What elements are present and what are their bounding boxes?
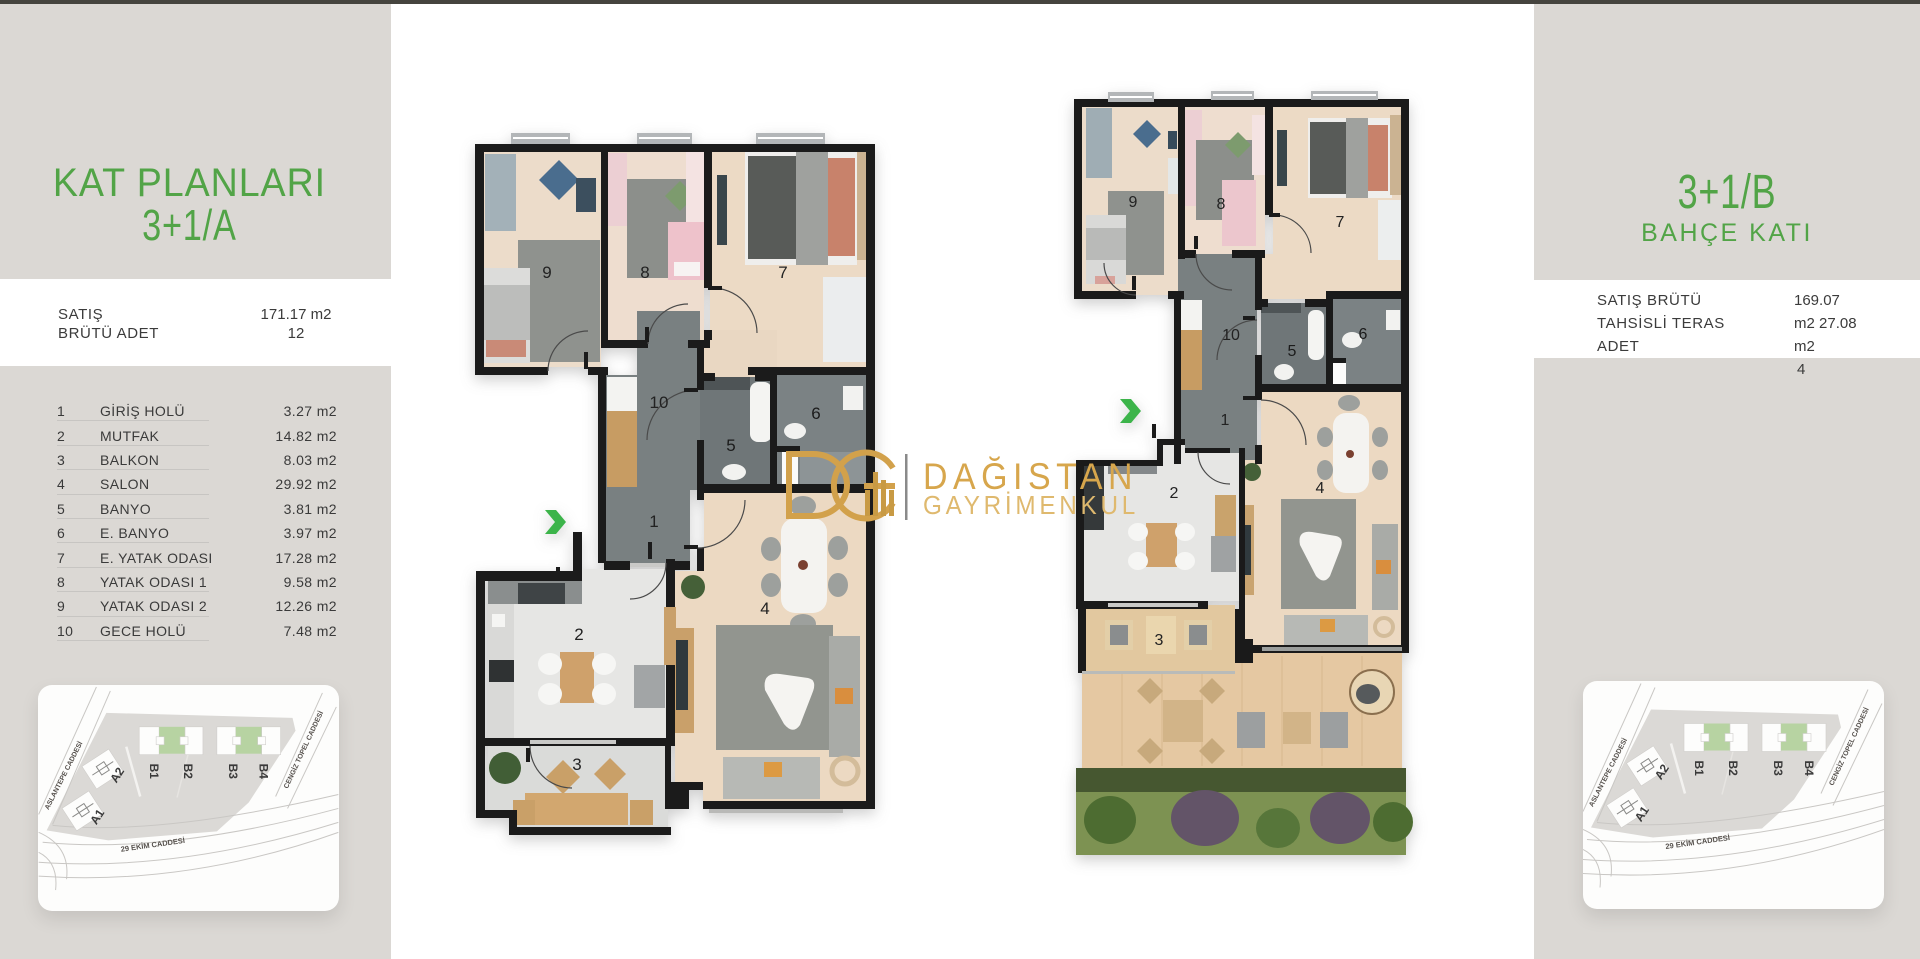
- svg-text:29 EKİM CADDESİ: 29 EKİM CADDESİ: [120, 836, 185, 854]
- svg-text:5: 5: [726, 436, 735, 455]
- svg-text:10: 10: [650, 393, 669, 412]
- svg-text:3: 3: [572, 755, 581, 774]
- svg-text:B1: B1: [147, 764, 161, 780]
- svg-text:GAYRİMENKUL: GAYRİMENKUL: [923, 490, 1139, 520]
- svg-text:B4: B4: [257, 764, 271, 780]
- svg-text:B3: B3: [1771, 761, 1785, 777]
- svg-text:6: 6: [1359, 326, 1368, 343]
- svg-text:2: 2: [1170, 485, 1179, 502]
- svg-text:B2: B2: [1726, 761, 1740, 777]
- svg-text:B2: B2: [181, 764, 195, 780]
- svg-text:7: 7: [778, 263, 787, 282]
- svg-text:29 EKİM CADDESİ: 29 EKİM CADDESİ: [1665, 833, 1731, 851]
- svg-text:8: 8: [640, 263, 649, 282]
- svg-text:6: 6: [811, 404, 820, 423]
- svg-text:9: 9: [542, 263, 551, 282]
- svg-text:B3: B3: [226, 764, 240, 780]
- svg-text:8: 8: [1217, 196, 1226, 213]
- svg-text:1: 1: [1221, 412, 1230, 429]
- svg-text:B1: B1: [1692, 761, 1706, 777]
- svg-text:10: 10: [1222, 327, 1240, 344]
- svg-text:2: 2: [574, 625, 583, 644]
- svg-text:5: 5: [1288, 343, 1297, 360]
- svg-text:B4: B4: [1802, 761, 1816, 777]
- svg-text:4: 4: [760, 599, 769, 618]
- svg-text:7: 7: [1336, 214, 1345, 231]
- svg-text:9: 9: [1129, 194, 1138, 211]
- svg-text:1: 1: [649, 512, 658, 531]
- svg-text:3: 3: [1155, 632, 1164, 649]
- svg-text:4: 4: [1316, 480, 1325, 497]
